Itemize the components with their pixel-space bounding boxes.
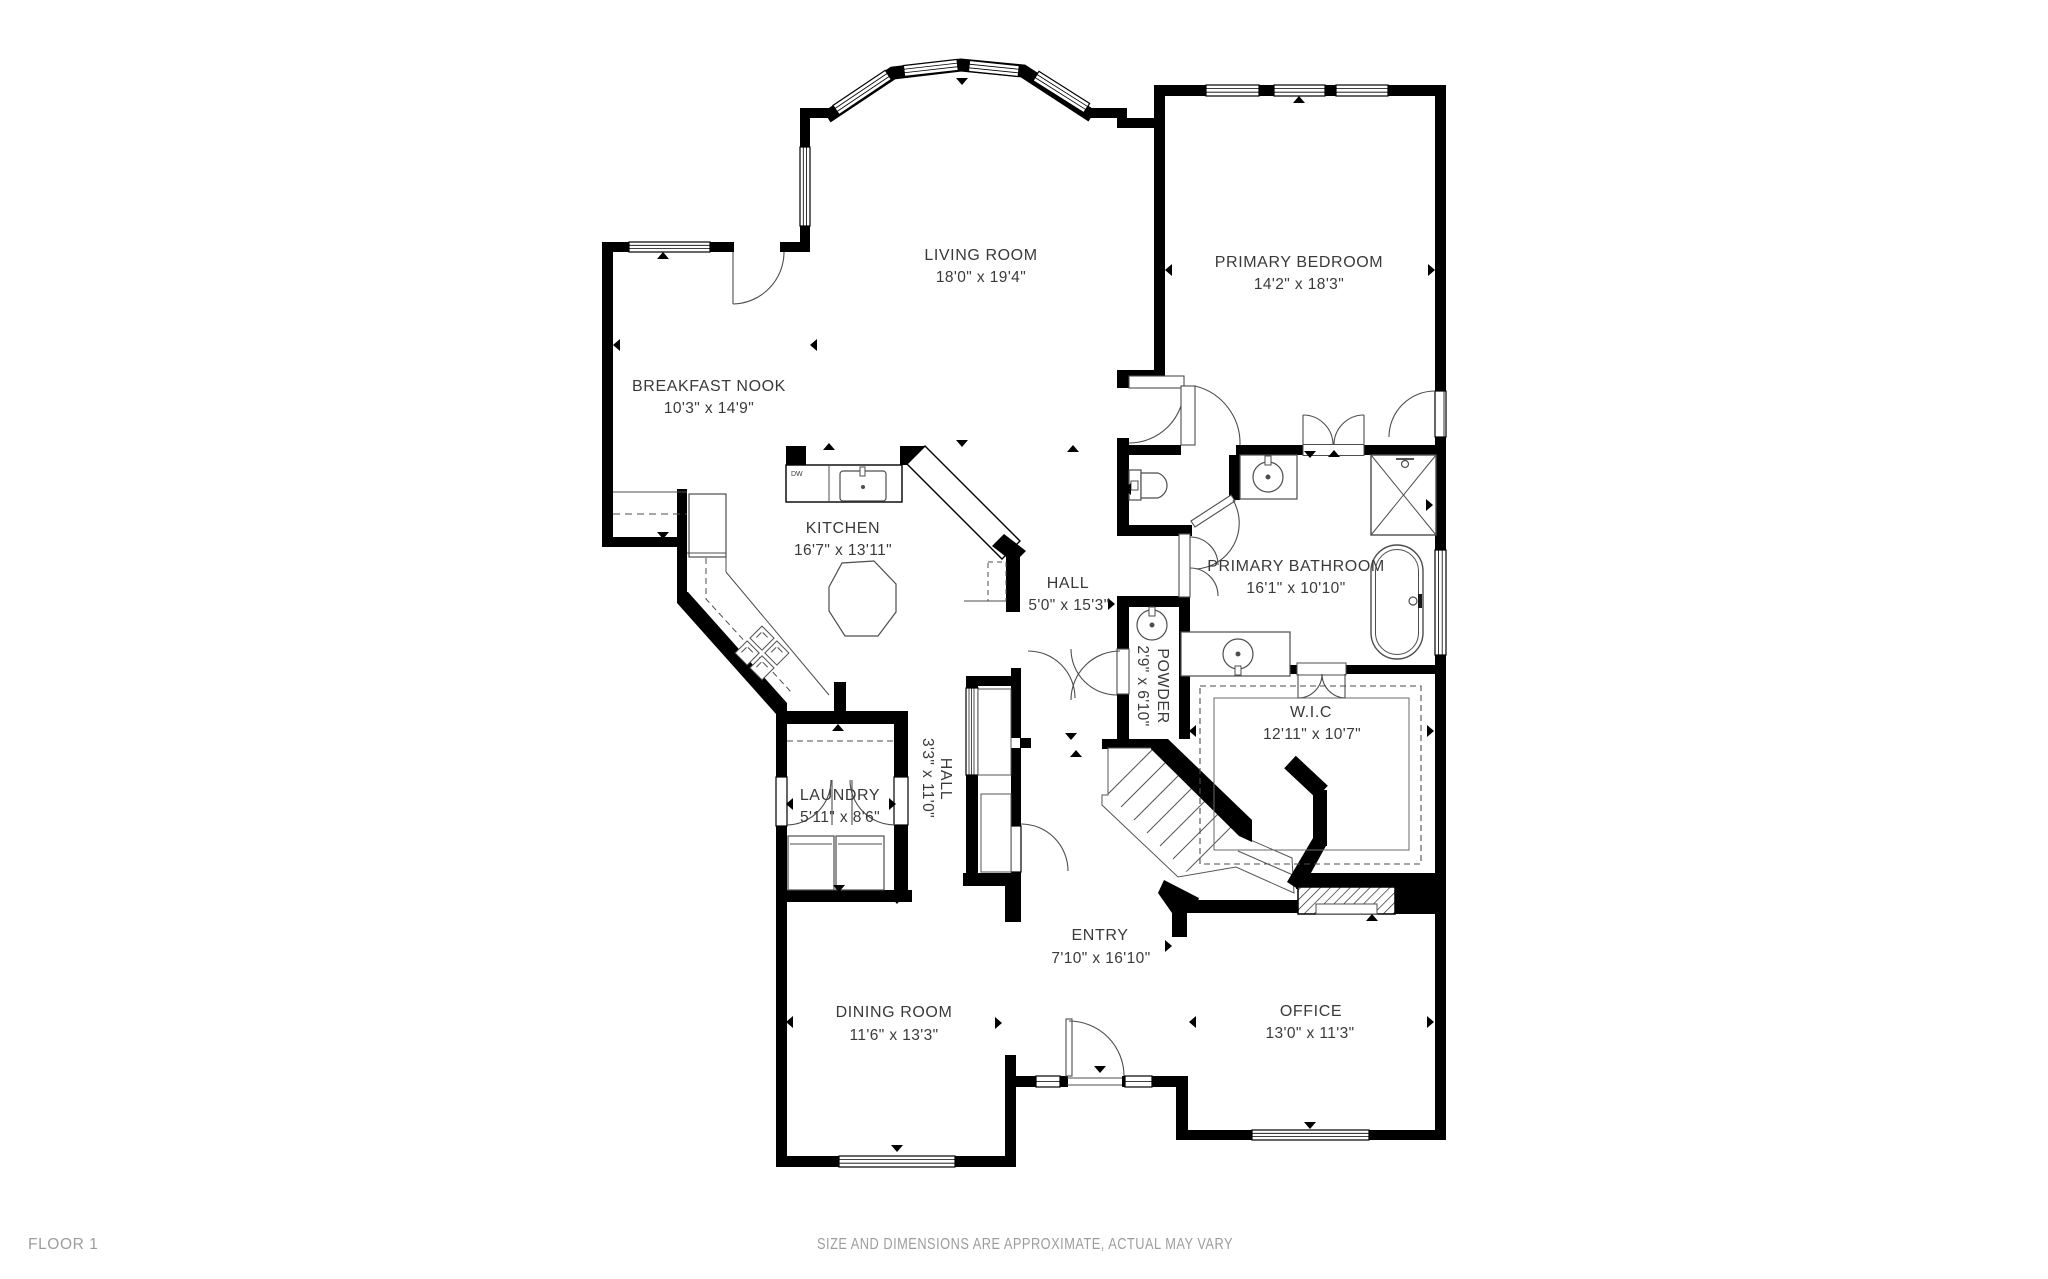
svg-text:OFFICE: OFFICE [1280, 1003, 1342, 1020]
svg-text:KITCHEN: KITCHEN [806, 520, 880, 537]
svg-text:5'0" x 15'3": 5'0" x 15'3" [1028, 597, 1109, 614]
svg-text:16'1" x 10'10": 16'1" x 10'10" [1246, 580, 1345, 597]
svg-text:FLOOR 1: FLOOR 1 [28, 1236, 99, 1253]
svg-text:HALL: HALL [1047, 575, 1089, 592]
svg-text:2'9" x 6'10": 2'9" x 6'10" [1134, 645, 1151, 726]
svg-text:12'11" x 10'7": 12'11" x 10'7" [1263, 726, 1361, 743]
svg-text:W.I.C: W.I.C [1290, 704, 1332, 721]
svg-text:5'11" x 8'6": 5'11" x 8'6" [800, 809, 880, 826]
svg-text:DW: DW [791, 471, 803, 478]
svg-text:SIZE AND DIMENSIONS ARE APPROX: SIZE AND DIMENSIONS ARE APPROXIMATE, ACT… [817, 1236, 1233, 1253]
svg-text:18'0" x 19'4": 18'0" x 19'4" [936, 269, 1026, 286]
svg-text:LAUNDRY: LAUNDRY [800, 787, 880, 804]
svg-text:16'7" x 13'11": 16'7" x 13'11" [794, 542, 892, 559]
svg-text:13'0" x 11'3": 13'0" x 11'3" [1265, 1025, 1354, 1042]
svg-text:11'6" x 13'3": 11'6" x 13'3" [849, 1027, 938, 1044]
svg-text:3'3" x 11'0": 3'3" x 11'0" [919, 738, 936, 818]
svg-text:DINING ROOM: DINING ROOM [836, 1004, 953, 1021]
svg-text:POWDER: POWDER [1154, 648, 1171, 724]
svg-text:HALL: HALL [937, 758, 954, 800]
svg-text:ENTRY: ENTRY [1072, 927, 1129, 944]
svg-text:BREAKFAST NOOK: BREAKFAST NOOK [632, 378, 786, 395]
svg-text:7'10" x 16'10": 7'10" x 16'10" [1051, 950, 1150, 967]
svg-text:10'3" x 14'9": 10'3" x 14'9" [664, 400, 754, 417]
svg-text:PRIMARY BEDROOM: PRIMARY BEDROOM [1215, 254, 1383, 271]
svg-text:14'2" x 18'3": 14'2" x 18'3" [1254, 276, 1344, 293]
svg-text:PRIMARY BATHROOM: PRIMARY BATHROOM [1207, 558, 1385, 575]
svg-text:LIVING ROOM: LIVING ROOM [924, 247, 1037, 264]
